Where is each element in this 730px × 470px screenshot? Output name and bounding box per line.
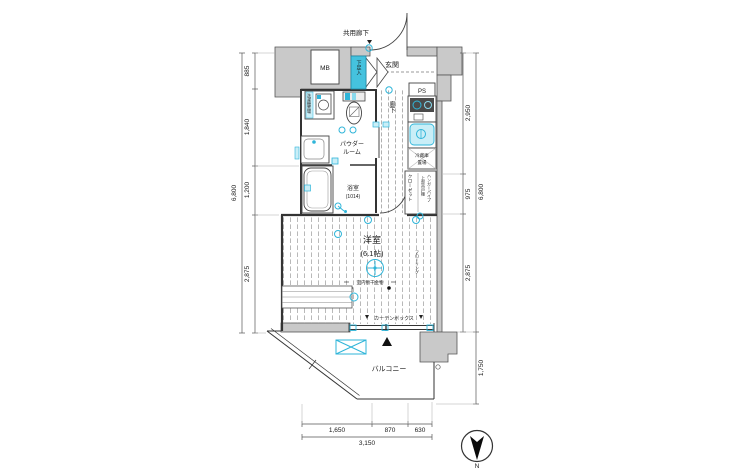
- dim-right-total: 6,800: [478, 183, 485, 200]
- dim-balcony-depth: 1,750: [478, 359, 485, 376]
- closet: クローゼット 上部吊戸棚 ハンガーパイプ: [405, 171, 436, 219]
- dim-left-2: 1,200: [244, 181, 251, 198]
- wall-right-strip: [437, 101, 442, 332]
- built-in-counter: [282, 286, 358, 308]
- entrance-label: 玄関: [385, 60, 399, 69]
- dim-bottom-2: 630: [415, 427, 426, 434]
- entrance-door-swing: [370, 13, 407, 50]
- wall-bottom-left-chunk: [281, 323, 350, 332]
- balcony-railing: [267, 329, 434, 400]
- compass: N: [462, 431, 493, 470]
- ac-unit-icon: [336, 340, 366, 354]
- floor-plan: MB 下足入 玄関 PS 共用廊下 洗濯機置場 パウダー ルーム: [0, 0, 730, 470]
- dim-bottom-1: 870: [385, 427, 396, 434]
- bathroom-label: 浴室: [347, 184, 359, 192]
- room-size-label: (6.1帖): [361, 248, 384, 258]
- floor-plan-drawing: MB 下足入 玄関 PS 共用廊下 洗濯機置場 パウダー ルーム: [0, 0, 730, 470]
- powder-room-label-2: ルーム: [343, 149, 361, 156]
- switch-icon: [373, 122, 379, 127]
- dim-left-1: 1,840: [244, 118, 251, 135]
- ps-label: PS: [418, 89, 426, 95]
- dim-left-3: 2,875: [244, 265, 251, 282]
- towel-bar-icon: [295, 147, 299, 159]
- common-corridor-arrow: [367, 40, 372, 44]
- toilet: [339, 92, 365, 133]
- towel-ring-icon: [350, 127, 356, 133]
- wall-top-strip-right: [407, 47, 437, 56]
- bathroom-size-label: (1014): [346, 194, 361, 200]
- fridge-label-1: 冷蔵庫: [415, 152, 429, 159]
- bath-door-switch-icon: [332, 158, 338, 164]
- shoe-box-label: 下足入: [356, 60, 362, 75]
- sink-basin-icon: [410, 124, 434, 145]
- closet-note-1: 上部吊戸棚: [421, 175, 426, 197]
- balcony: バルコニー: [267, 329, 440, 400]
- compass-north-label: N: [475, 463, 480, 470]
- outlet-icon: [383, 122, 389, 127]
- wall-top-right-block: [437, 47, 462, 75]
- balcony-entry-marker: [382, 337, 392, 346]
- balcony-drain-icon: [436, 365, 440, 369]
- reheat-unit-icon: [305, 185, 311, 191]
- washer-space: 洗濯機置場: [305, 91, 334, 119]
- wall-top-strip-left: [351, 47, 370, 56]
- wall-top-right-step: [437, 75, 451, 101]
- ceiling-light-icon: [367, 260, 384, 277]
- dim-bottom-0: 1,650: [329, 427, 346, 434]
- wall-bottom-right-block: [420, 332, 457, 362]
- faucet-icon: [312, 140, 316, 144]
- washer-space-label: 洗濯機置場: [307, 92, 312, 114]
- room-label: 洋室: [363, 234, 381, 245]
- mb-label: MB: [320, 65, 330, 72]
- paper-holder-icon: [339, 127, 345, 133]
- bathroom: [302, 166, 347, 213]
- window: [349, 323, 434, 332]
- common-corridor-label: 共用廊下: [343, 28, 370, 37]
- dim-left-total: 6,800: [231, 184, 238, 201]
- indoor-drying-label: 室内物干金物: [357, 279, 384, 286]
- closet-note-2: ハンガーパイプ: [427, 174, 432, 203]
- flooring-note: フローリング: [415, 250, 420, 275]
- dim-bottom-total: 3,150: [359, 440, 376, 447]
- curtain-box-label: カーテンボックス: [374, 315, 414, 322]
- hallway-label: 廊下: [388, 100, 395, 114]
- fridge-label-2: 置場: [418, 159, 427, 166]
- balcony-label: バルコニー: [372, 365, 407, 373]
- closet-label: クローゼット: [407, 174, 413, 202]
- powder-room-label-1: パウダー: [340, 140, 364, 148]
- dim-right-0: 2,950: [465, 104, 472, 121]
- dim-right-1: 975: [465, 188, 472, 199]
- kitchen: 冷蔵庫 置場: [408, 96, 436, 169]
- dim-right-2: 2,875: [465, 264, 472, 281]
- dimensions-bottom: [302, 402, 432, 440]
- dim-left-0: 885: [244, 65, 251, 76]
